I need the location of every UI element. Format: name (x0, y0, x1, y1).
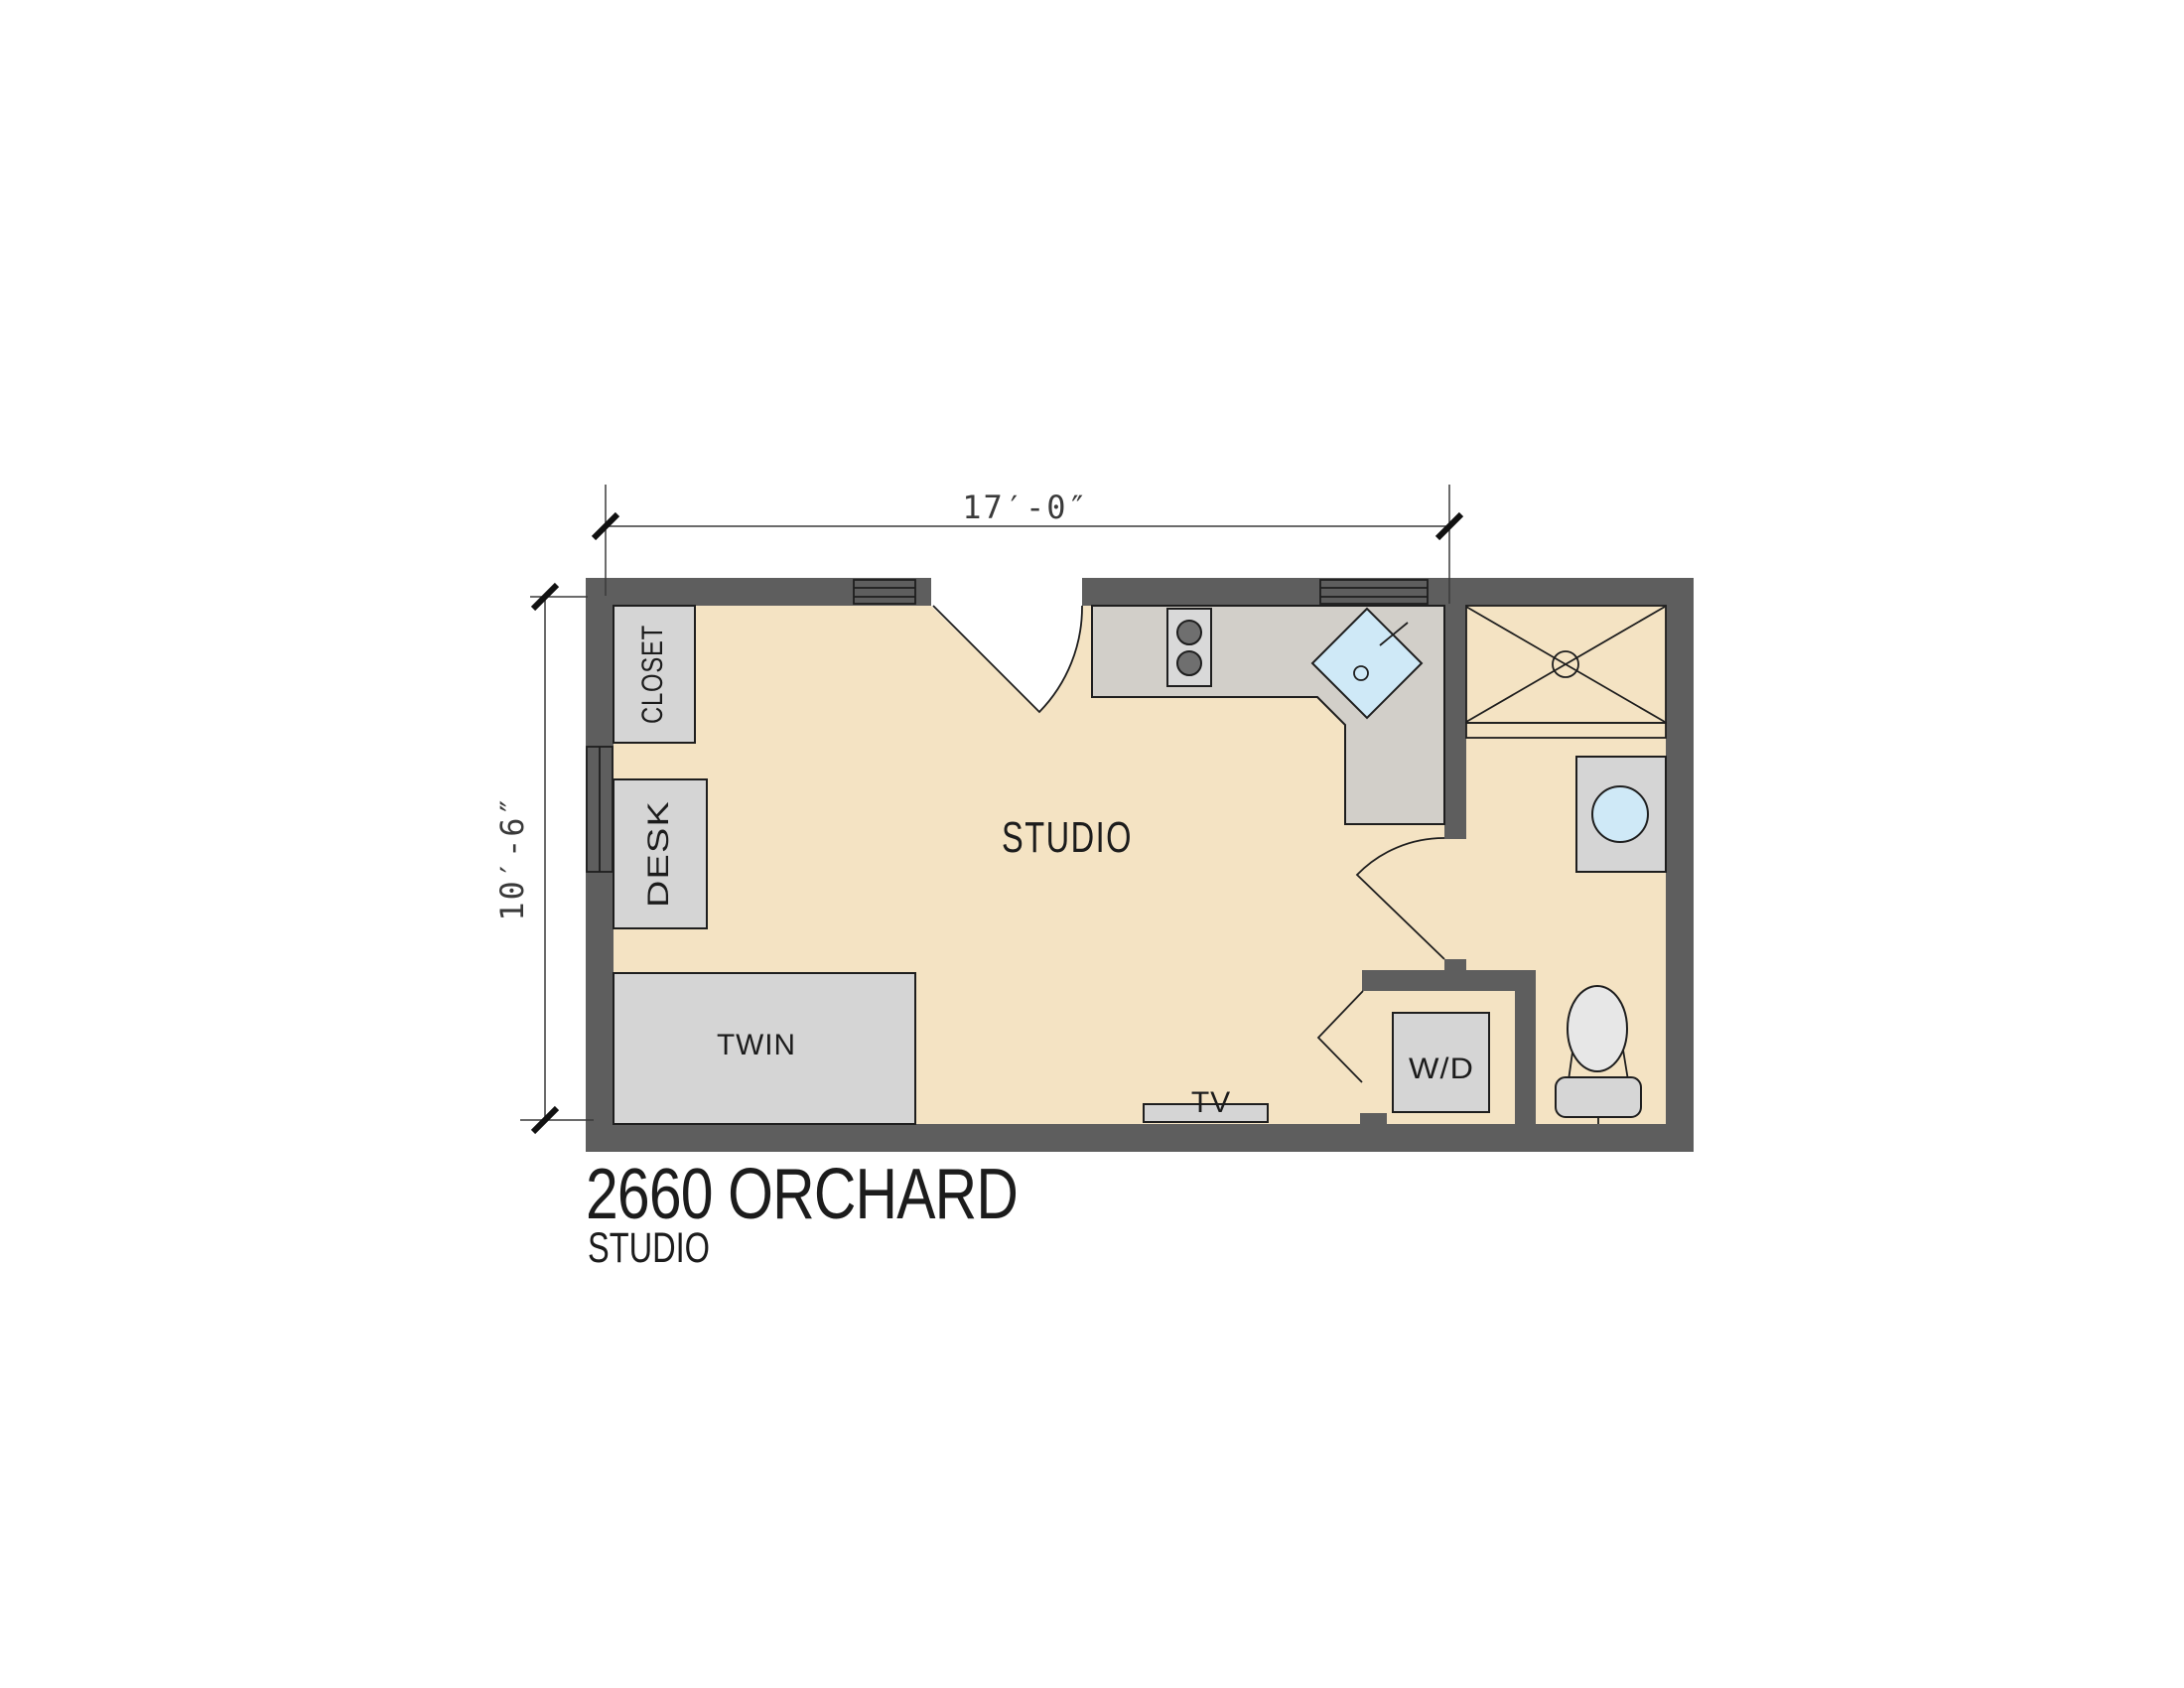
wall-wd-closet-top (1362, 970, 1536, 991)
wall-wd-closet-right (1515, 991, 1536, 1124)
toilet-bowl (1568, 986, 1627, 1071)
wall-bathroom-door-jamb (1444, 959, 1466, 971)
floor-plan-page: CLOSET DESK TWIN TV W/D STUDIO 17′-0″ 10… (0, 0, 2184, 1688)
dim-width-text: 17′-0″ (962, 489, 1089, 526)
vanity-basin (1592, 786, 1648, 842)
tv-label: TV (1191, 1086, 1231, 1119)
wall-bottom (586, 1124, 1694, 1152)
twin-bed-label: TWIN (717, 1029, 796, 1061)
stove-burner (1177, 651, 1201, 675)
dim-height-text: 10′-6″ (493, 794, 531, 921)
stove-burner (1177, 621, 1201, 644)
desk-label: DESK (642, 800, 675, 908)
floor-plan-svg: CLOSET DESK TWIN TV W/D STUDIO 17′-0″ 10… (0, 0, 2184, 1688)
dimension-height: 10′-6″ (493, 585, 594, 1132)
studio-room-label: STUDIO (1002, 813, 1133, 862)
toilet-tank (1556, 1077, 1641, 1117)
vanity-sink-icon (1576, 757, 1666, 872)
wall-divider-bathroom (1444, 606, 1466, 839)
plan-title: 2660 ORCHARD (586, 1155, 1018, 1234)
plan-subtitle: STUDIO (588, 1224, 710, 1272)
closet-label: CLOSET (636, 625, 669, 724)
wall-top (586, 578, 1694, 606)
washer-dryer-label: W/D (1409, 1053, 1474, 1085)
stove-icon (1167, 609, 1211, 686)
wall-wd-closet-bottom-stub (1360, 1113, 1387, 1124)
wall-right (1666, 578, 1694, 1152)
